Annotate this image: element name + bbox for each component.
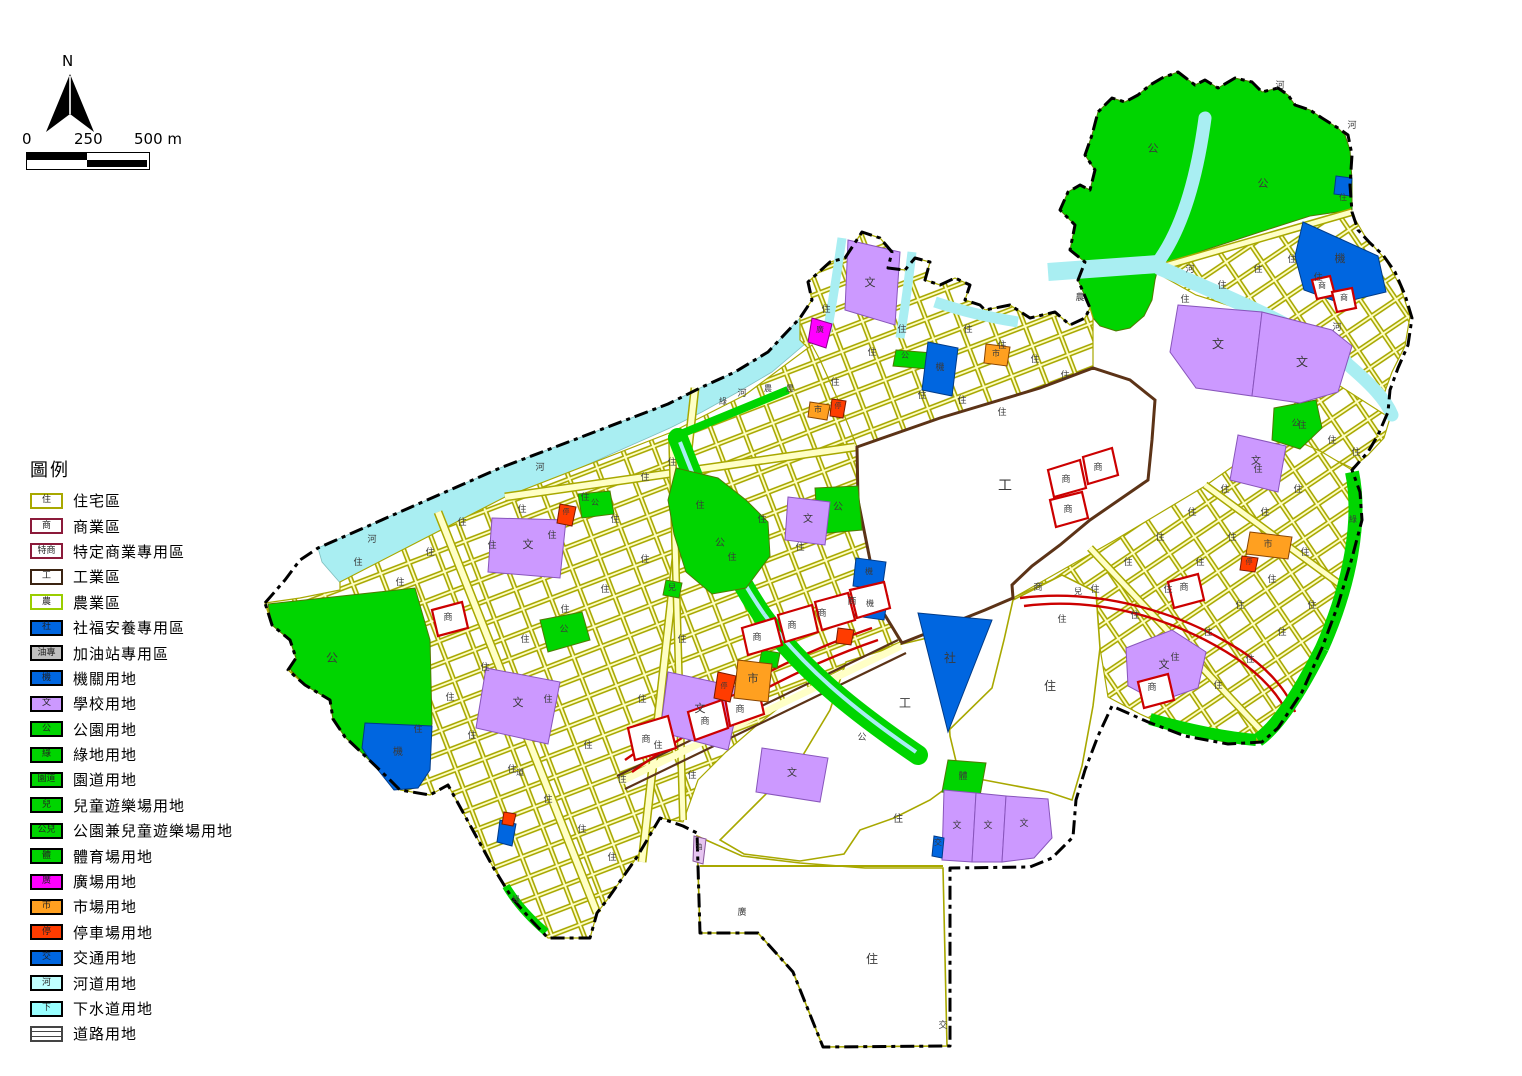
map-label: 住 [1287, 253, 1296, 265]
map-label: 住 [1163, 583, 1172, 595]
map-label: 住 [1313, 271, 1322, 283]
map-label: 住 [1300, 546, 1309, 558]
map-label: 交 [938, 1019, 947, 1031]
map-label: 住 [1253, 463, 1262, 475]
map-label: 住 [867, 346, 876, 358]
map-label: 文 [865, 275, 876, 289]
map-label: 住 [1267, 573, 1276, 585]
map-label: 住 [580, 491, 589, 503]
map-label: 住 [1245, 653, 1254, 665]
map-label: 道 [516, 767, 524, 777]
map-label: 停 [721, 681, 728, 690]
map-label: 商 [700, 715, 709, 727]
map-label: 住 [560, 603, 569, 615]
parcel-parking [836, 628, 854, 645]
map-label: 住 [543, 793, 552, 805]
map-label: 住 [1293, 483, 1302, 495]
map-label: 商 [817, 607, 826, 619]
map-label: 住 [467, 729, 476, 741]
map-label: 商 [847, 595, 856, 607]
map-label: 住 [425, 546, 434, 558]
map-label: 住 [1195, 556, 1204, 568]
map-label: 廣 [816, 324, 824, 334]
map-label: 公 [591, 498, 599, 507]
map-label: 住 [1217, 279, 1226, 291]
map-label: 住 [577, 823, 586, 835]
map-label: 住 [507, 763, 516, 775]
map-label: 油 [696, 842, 703, 851]
map-label: 住 [997, 339, 1006, 351]
map-label: 住 [1123, 556, 1132, 568]
zoning-map-page: N 0 250 500 m 圖例 住住宅區商商業區特商特定商業專用區工工業區農農… [0, 0, 1522, 1076]
map-label: 住 [1180, 293, 1189, 305]
map-label: 住 [1203, 626, 1212, 638]
map-label: 公 [1148, 142, 1159, 155]
map-label: 機 [866, 598, 874, 608]
map-label: 文 [1159, 657, 1170, 671]
map-label: 住 [1187, 506, 1196, 518]
map-label: 住 [583, 739, 592, 751]
zone-areas [265, 72, 1410, 1047]
map-label: 住 [1044, 679, 1056, 693]
map-label: 公 [326, 651, 338, 665]
zone-white [697, 836, 947, 1047]
map-label: 綠 [1349, 514, 1357, 524]
map-label: 體 [958, 770, 967, 782]
map-label: 住 [543, 693, 552, 705]
map-canvas: 河河河河河河河綠綠綠農農農公公公公公公公公公公工工社體兒兒道油交交廣廣市市市市停… [0, 0, 1522, 1076]
map-label: 住 [413, 723, 422, 735]
map-label: 公 [1258, 177, 1269, 190]
map-label: 工 [899, 696, 911, 710]
map-label: 住 [547, 529, 556, 541]
map-label: 住 [445, 691, 454, 703]
map-label: 住 [1253, 263, 1262, 275]
map-label: 住 [617, 773, 626, 785]
map-label: 公 [901, 351, 909, 360]
map-label: 住 [1090, 583, 1099, 595]
map-label: 兒 [1074, 586, 1082, 596]
map-label: 河 [367, 533, 376, 545]
map-label: 停 [563, 507, 570, 516]
map-label: 商 [1061, 473, 1070, 485]
map-label: 商 [443, 611, 452, 623]
map-label: 住 [1277, 626, 1286, 638]
zoning-map: 河河河河河河河綠綠綠農農農公公公公公公公公公公工工社體兒兒道油交交廣廣市市市市停… [0, 0, 1522, 1076]
map-label: 住 [1030, 353, 1039, 365]
map-label: 住 [653, 739, 662, 751]
map-label: 河 [1185, 263, 1194, 275]
map-label: 停 [835, 401, 842, 410]
map-label: 住 [866, 952, 878, 966]
map-label: 商 [1147, 681, 1156, 693]
map-label: 住 [1351, 446, 1360, 458]
map-label: 住 [957, 394, 966, 406]
map-label: 商 [752, 631, 761, 643]
map-label: 機 [935, 361, 944, 373]
map-label: 住 [395, 576, 404, 588]
parcel-parking [502, 812, 516, 826]
map-label: 住 [963, 323, 972, 335]
map-label: 交 [934, 837, 942, 847]
map-label: 住 [1170, 651, 1179, 663]
map-label: 住 [353, 556, 362, 568]
map-label: 住 [667, 456, 676, 468]
map-label: 住 [757, 513, 766, 525]
map-label: 文 [952, 819, 961, 831]
map-label: 公 [715, 538, 725, 549]
map-label: 機 [865, 566, 873, 576]
map-label: 住 [727, 551, 736, 563]
map-label: 商 [1340, 292, 1348, 302]
map-label: 廣 [737, 906, 746, 918]
map-label: 住 [480, 661, 489, 673]
map-label: 住 [600, 583, 609, 595]
map-label: 住 [917, 389, 926, 401]
map-label: 文 [787, 766, 797, 779]
map-label: 住 [1327, 434, 1336, 446]
map-label: 商 [641, 733, 650, 745]
map-label: 河 [535, 461, 544, 473]
map-label: 住 [610, 513, 619, 525]
map-label: 文 [1019, 817, 1028, 829]
map-label: 住 [487, 539, 496, 551]
map-label: 河 [1275, 79, 1284, 91]
map-label: 河 [1347, 119, 1356, 131]
map-label: 文 [513, 695, 524, 709]
map-label: 住 [1155, 531, 1164, 543]
map-label: 文 [523, 537, 534, 551]
map-label: 停 [1246, 557, 1253, 566]
map-label: 住 [637, 693, 646, 705]
map-label: 住 [1297, 419, 1306, 431]
map-label: 住 [607, 851, 616, 863]
map-label: 商 [1093, 461, 1102, 473]
map-label: 農 [786, 383, 794, 393]
map-label: 農 [1075, 291, 1084, 303]
map-label: 機 [1335, 251, 1346, 265]
map-label: 住 [1260, 506, 1269, 518]
map-label: 住 [687, 769, 696, 781]
map-label: 商 [1063, 503, 1072, 515]
map-label: 綠 [512, 894, 520, 904]
parcel-school [1002, 796, 1052, 862]
map-label: 公 [559, 624, 568, 635]
map-label: 住 [457, 516, 466, 528]
map-label: 住 [640, 471, 649, 483]
map-label: 文 [803, 512, 813, 525]
map-label: 住 [1057, 613, 1066, 625]
map-label: 商 [1179, 581, 1188, 593]
map-label: 工 [998, 478, 1012, 494]
map-label: 住 [520, 633, 529, 645]
map-label: 市 [748, 671, 759, 685]
map-label: 市 [1263, 538, 1272, 550]
map-label: 住 [1235, 599, 1244, 611]
map-label: 文 [983, 819, 992, 831]
map-label: 住 [1227, 531, 1236, 543]
map-label: 文 [1296, 354, 1308, 369]
map-label: 住 [677, 633, 686, 645]
map-label: 商 [787, 619, 796, 631]
map-label: 商 [1033, 581, 1042, 593]
map-label: 河 [1332, 321, 1341, 333]
map-label: 住 [893, 812, 903, 825]
map-label: 住 [795, 541, 804, 553]
map-label: 住 [997, 406, 1006, 418]
map-label: 市 [814, 404, 822, 414]
map-label: 住 [1339, 192, 1347, 202]
map-label: 公 [857, 732, 866, 743]
map-label: 兒 [668, 582, 676, 592]
map-label: 商 [735, 703, 744, 715]
map-label: 公 [833, 502, 843, 513]
map-label: 文 [695, 701, 706, 715]
map-label: 住 [897, 323, 906, 335]
map-label: 住 [1307, 599, 1316, 611]
map-label: 河 [737, 387, 746, 399]
map-label: 住 [640, 553, 649, 565]
map-label: 住 [695, 499, 704, 511]
map-label: 社 [944, 650, 956, 665]
map-label: 住 [1130, 609, 1139, 621]
map-label: 住 [517, 503, 526, 515]
map-label: 住 [1220, 483, 1229, 495]
map-label: 住 [830, 376, 839, 388]
map-label: 住 [821, 303, 830, 315]
map-label: 文 [1212, 336, 1224, 351]
map-line [1048, 264, 1158, 272]
map-label: 住 [1213, 679, 1222, 691]
map-label: 農 [764, 383, 772, 393]
map-label: 住 [1060, 369, 1069, 381]
map-label: 機 [393, 745, 403, 758]
map-label: 綠 [719, 396, 727, 406]
